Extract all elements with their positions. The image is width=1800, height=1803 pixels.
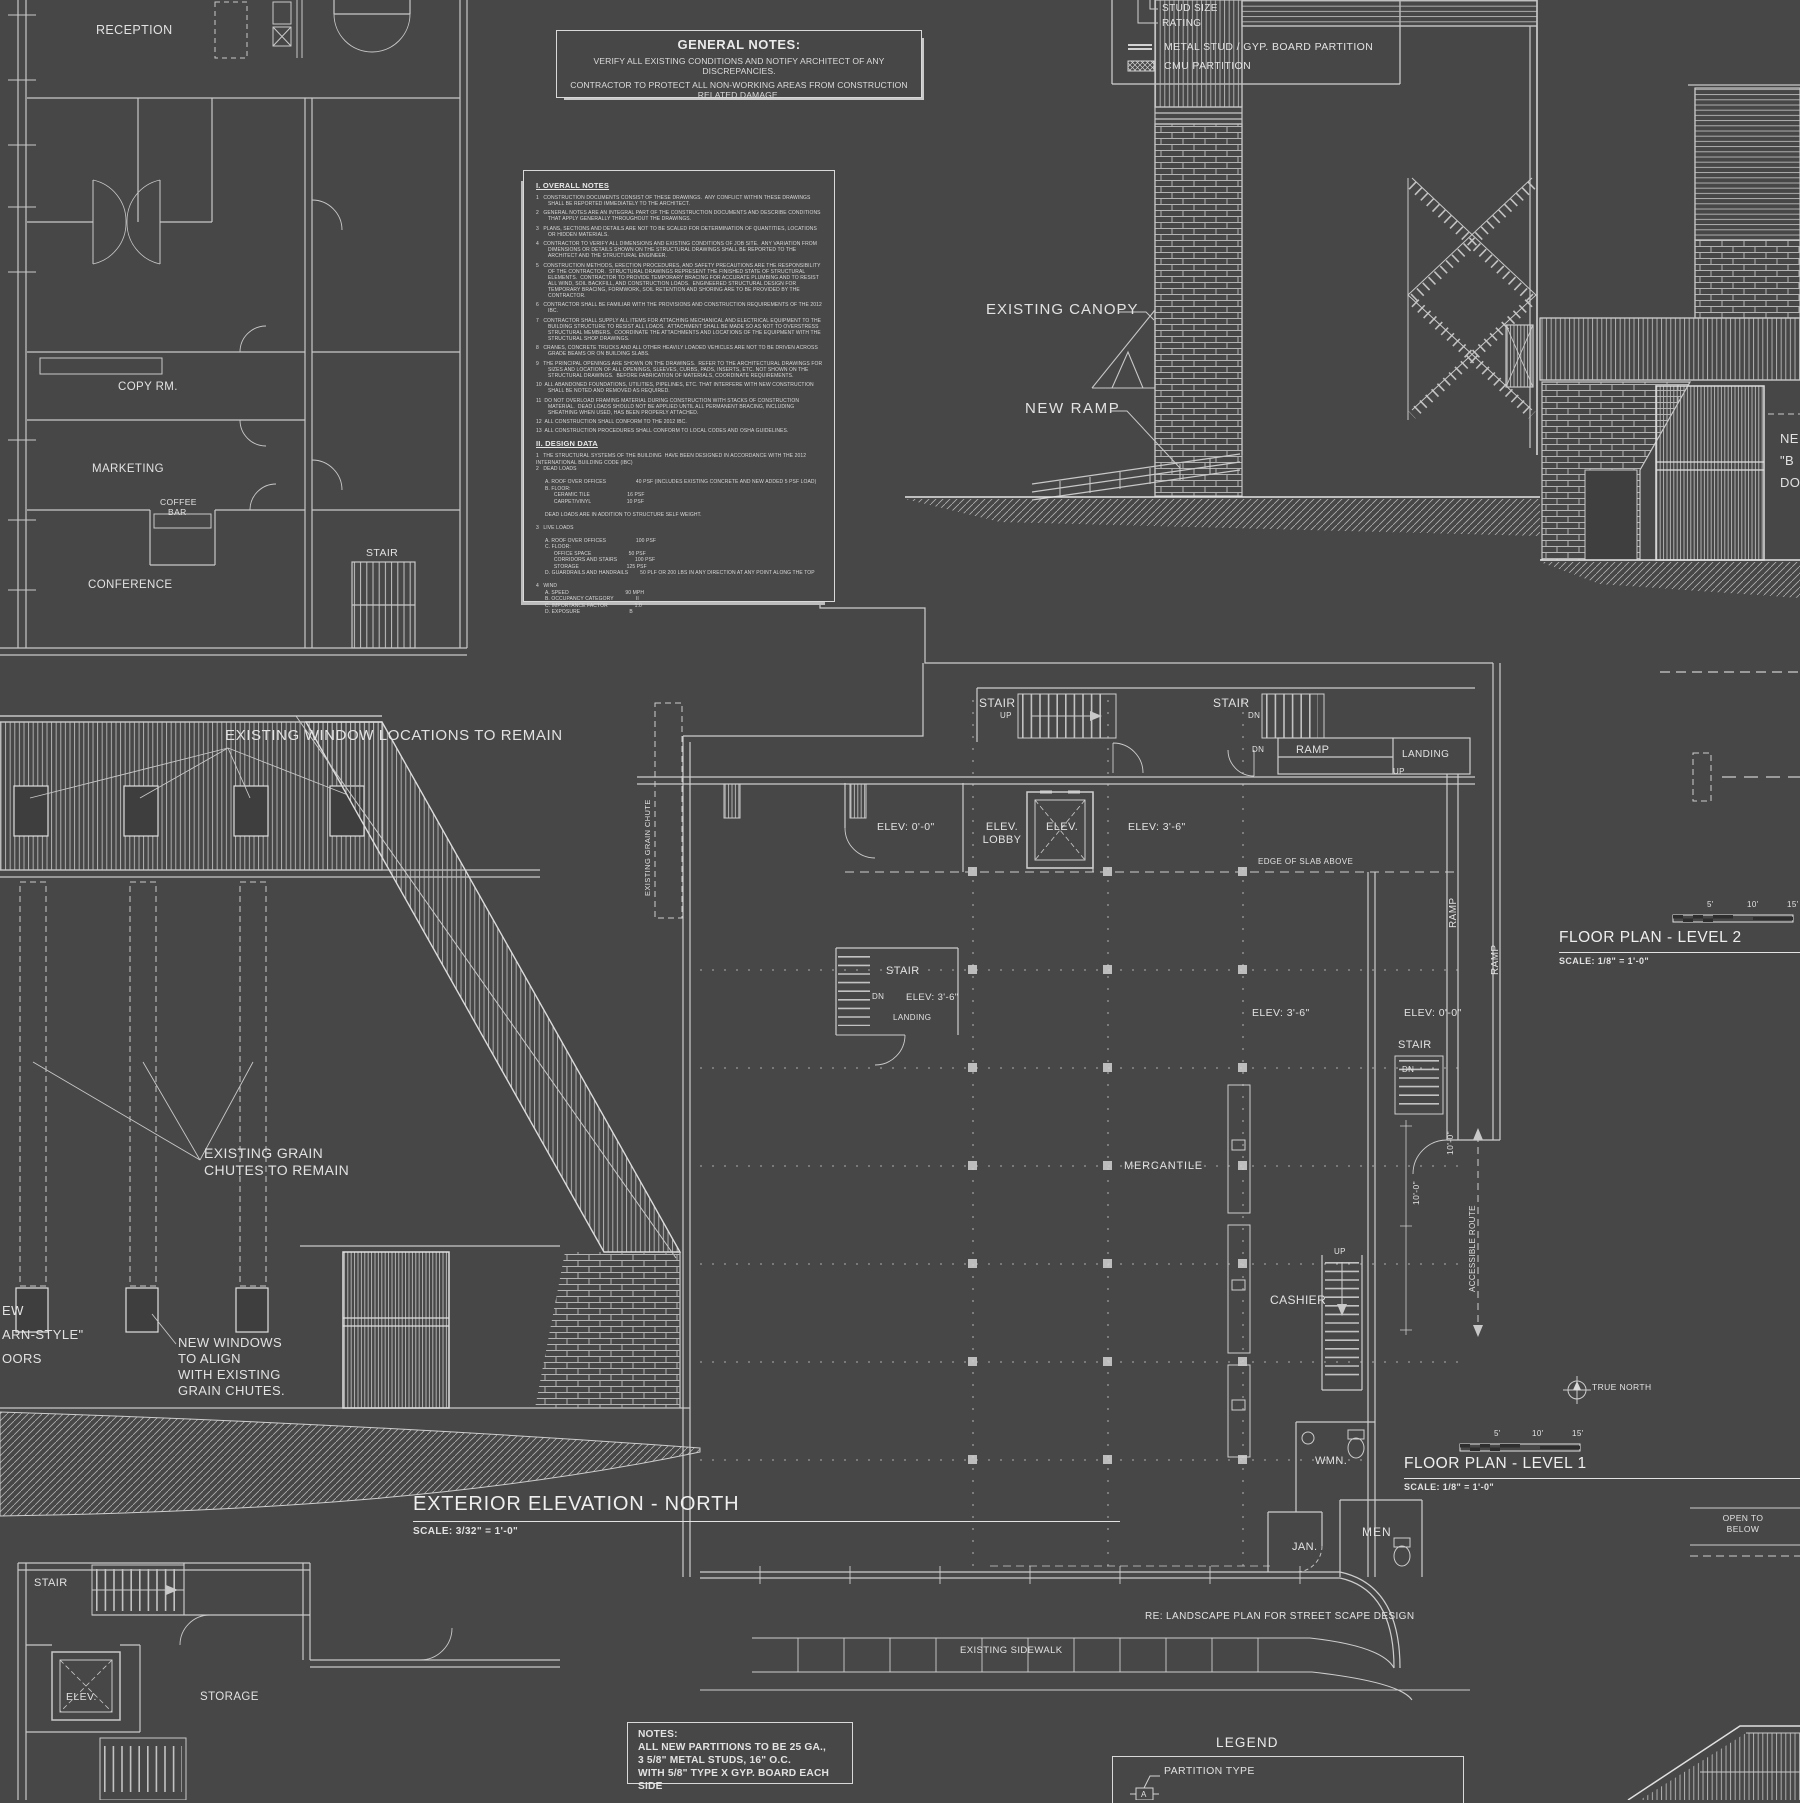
partition-type-symbol: A (1141, 1791, 1147, 1799)
blueprint-canvas: RECEPTION COPY RM. MARKETING COFFEE BAR … (0, 0, 1800, 1800)
bottom-legend-title: LEGEND (1216, 1736, 1279, 1750)
bottom-legend-box (1112, 1756, 1464, 1803)
label-partition-type: PARTITION TYPE (1164, 1766, 1255, 1777)
bottom-legend-labels: LEGEND PARTITION TYPE A (0, 0, 1800, 1800)
